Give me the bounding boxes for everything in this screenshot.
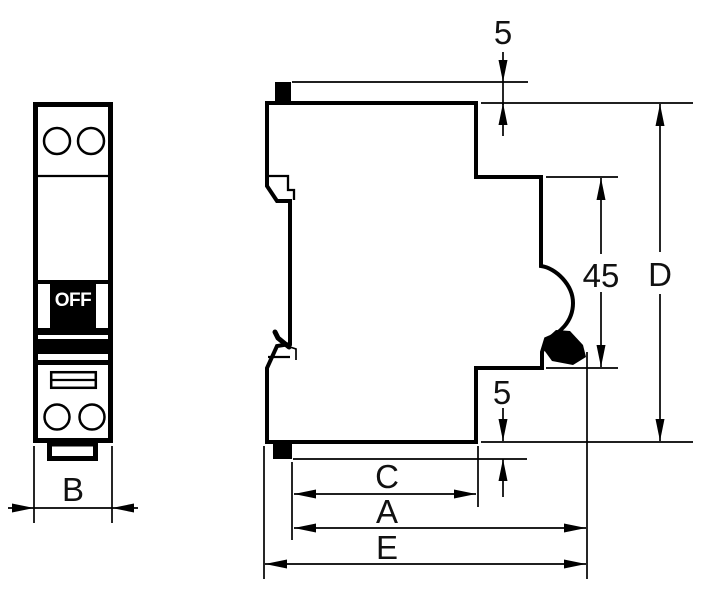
front-view: OFF B — [8, 105, 138, 524]
dim-45-arrow-up — [597, 178, 606, 200]
toggle-band-2 — [36, 339, 110, 354]
dim-bot5-arrow-up — [499, 459, 508, 481]
dim-b-arrow-left — [12, 504, 34, 513]
front-bottom-screw-right — [80, 405, 105, 430]
side-bottom-terminal — [273, 443, 292, 459]
toggle-slot-left — [38, 284, 50, 328]
dim-a-arrow-left — [294, 524, 316, 533]
side-body-outline — [267, 103, 573, 442]
dim-top5-arrow-down — [499, 60, 508, 82]
side-view: 5 45 D 5 — [264, 14, 693, 579]
dim-45-label: 45 — [583, 257, 620, 294]
front-bottom-screw-left — [45, 405, 70, 430]
dim-b-arrow-right — [112, 504, 134, 513]
toggle-band-3 — [36, 360, 110, 365]
dim-bottom-5: 5 — [493, 374, 511, 497]
dim-top-5: 5 — [494, 14, 512, 136]
dim-a: A — [294, 493, 586, 533]
dim-d-label: D — [648, 256, 672, 293]
toggle-off-label: OFF — [55, 290, 92, 311]
dim-a-label: A — [376, 493, 398, 530]
dim-top5-arrow-up — [499, 103, 508, 125]
dim-c-arrow-left — [294, 490, 316, 499]
front-body-outline — [36, 105, 111, 441]
front-din-foot — [50, 444, 96, 459]
dim-e-arrow-right — [564, 560, 586, 569]
dim-bot5-arrow-down — [499, 419, 508, 441]
dim-45: 45 — [583, 178, 620, 367]
dim-d: D — [648, 104, 672, 441]
dim-e-label: E — [376, 529, 398, 566]
dim-a-arrow-right — [564, 524, 586, 533]
front-top-screw-right — [78, 128, 104, 154]
dim-b-label: B — [62, 471, 84, 508]
dim-e-arrow-left — [265, 560, 287, 569]
dimension-drawing: OFF B — [0, 0, 714, 614]
dim-d-arrow-up — [656, 104, 665, 126]
dim-d-arrow-down — [656, 419, 665, 441]
front-top-screw-left — [44, 128, 70, 154]
dim-c-arrow-right — [454, 490, 476, 499]
toggle-lever — [544, 330, 586, 365]
dim-45-arrow-down — [597, 345, 606, 367]
dim-bot5-label: 5 — [493, 374, 511, 411]
dim-e: E — [265, 529, 586, 569]
side-top-terminal — [275, 82, 291, 104]
drawing-svg: OFF B — [0, 0, 714, 614]
toggle-slot-right — [96, 284, 108, 328]
dim-top5-label: 5 — [494, 14, 512, 51]
dim-c-label: C — [375, 458, 399, 495]
